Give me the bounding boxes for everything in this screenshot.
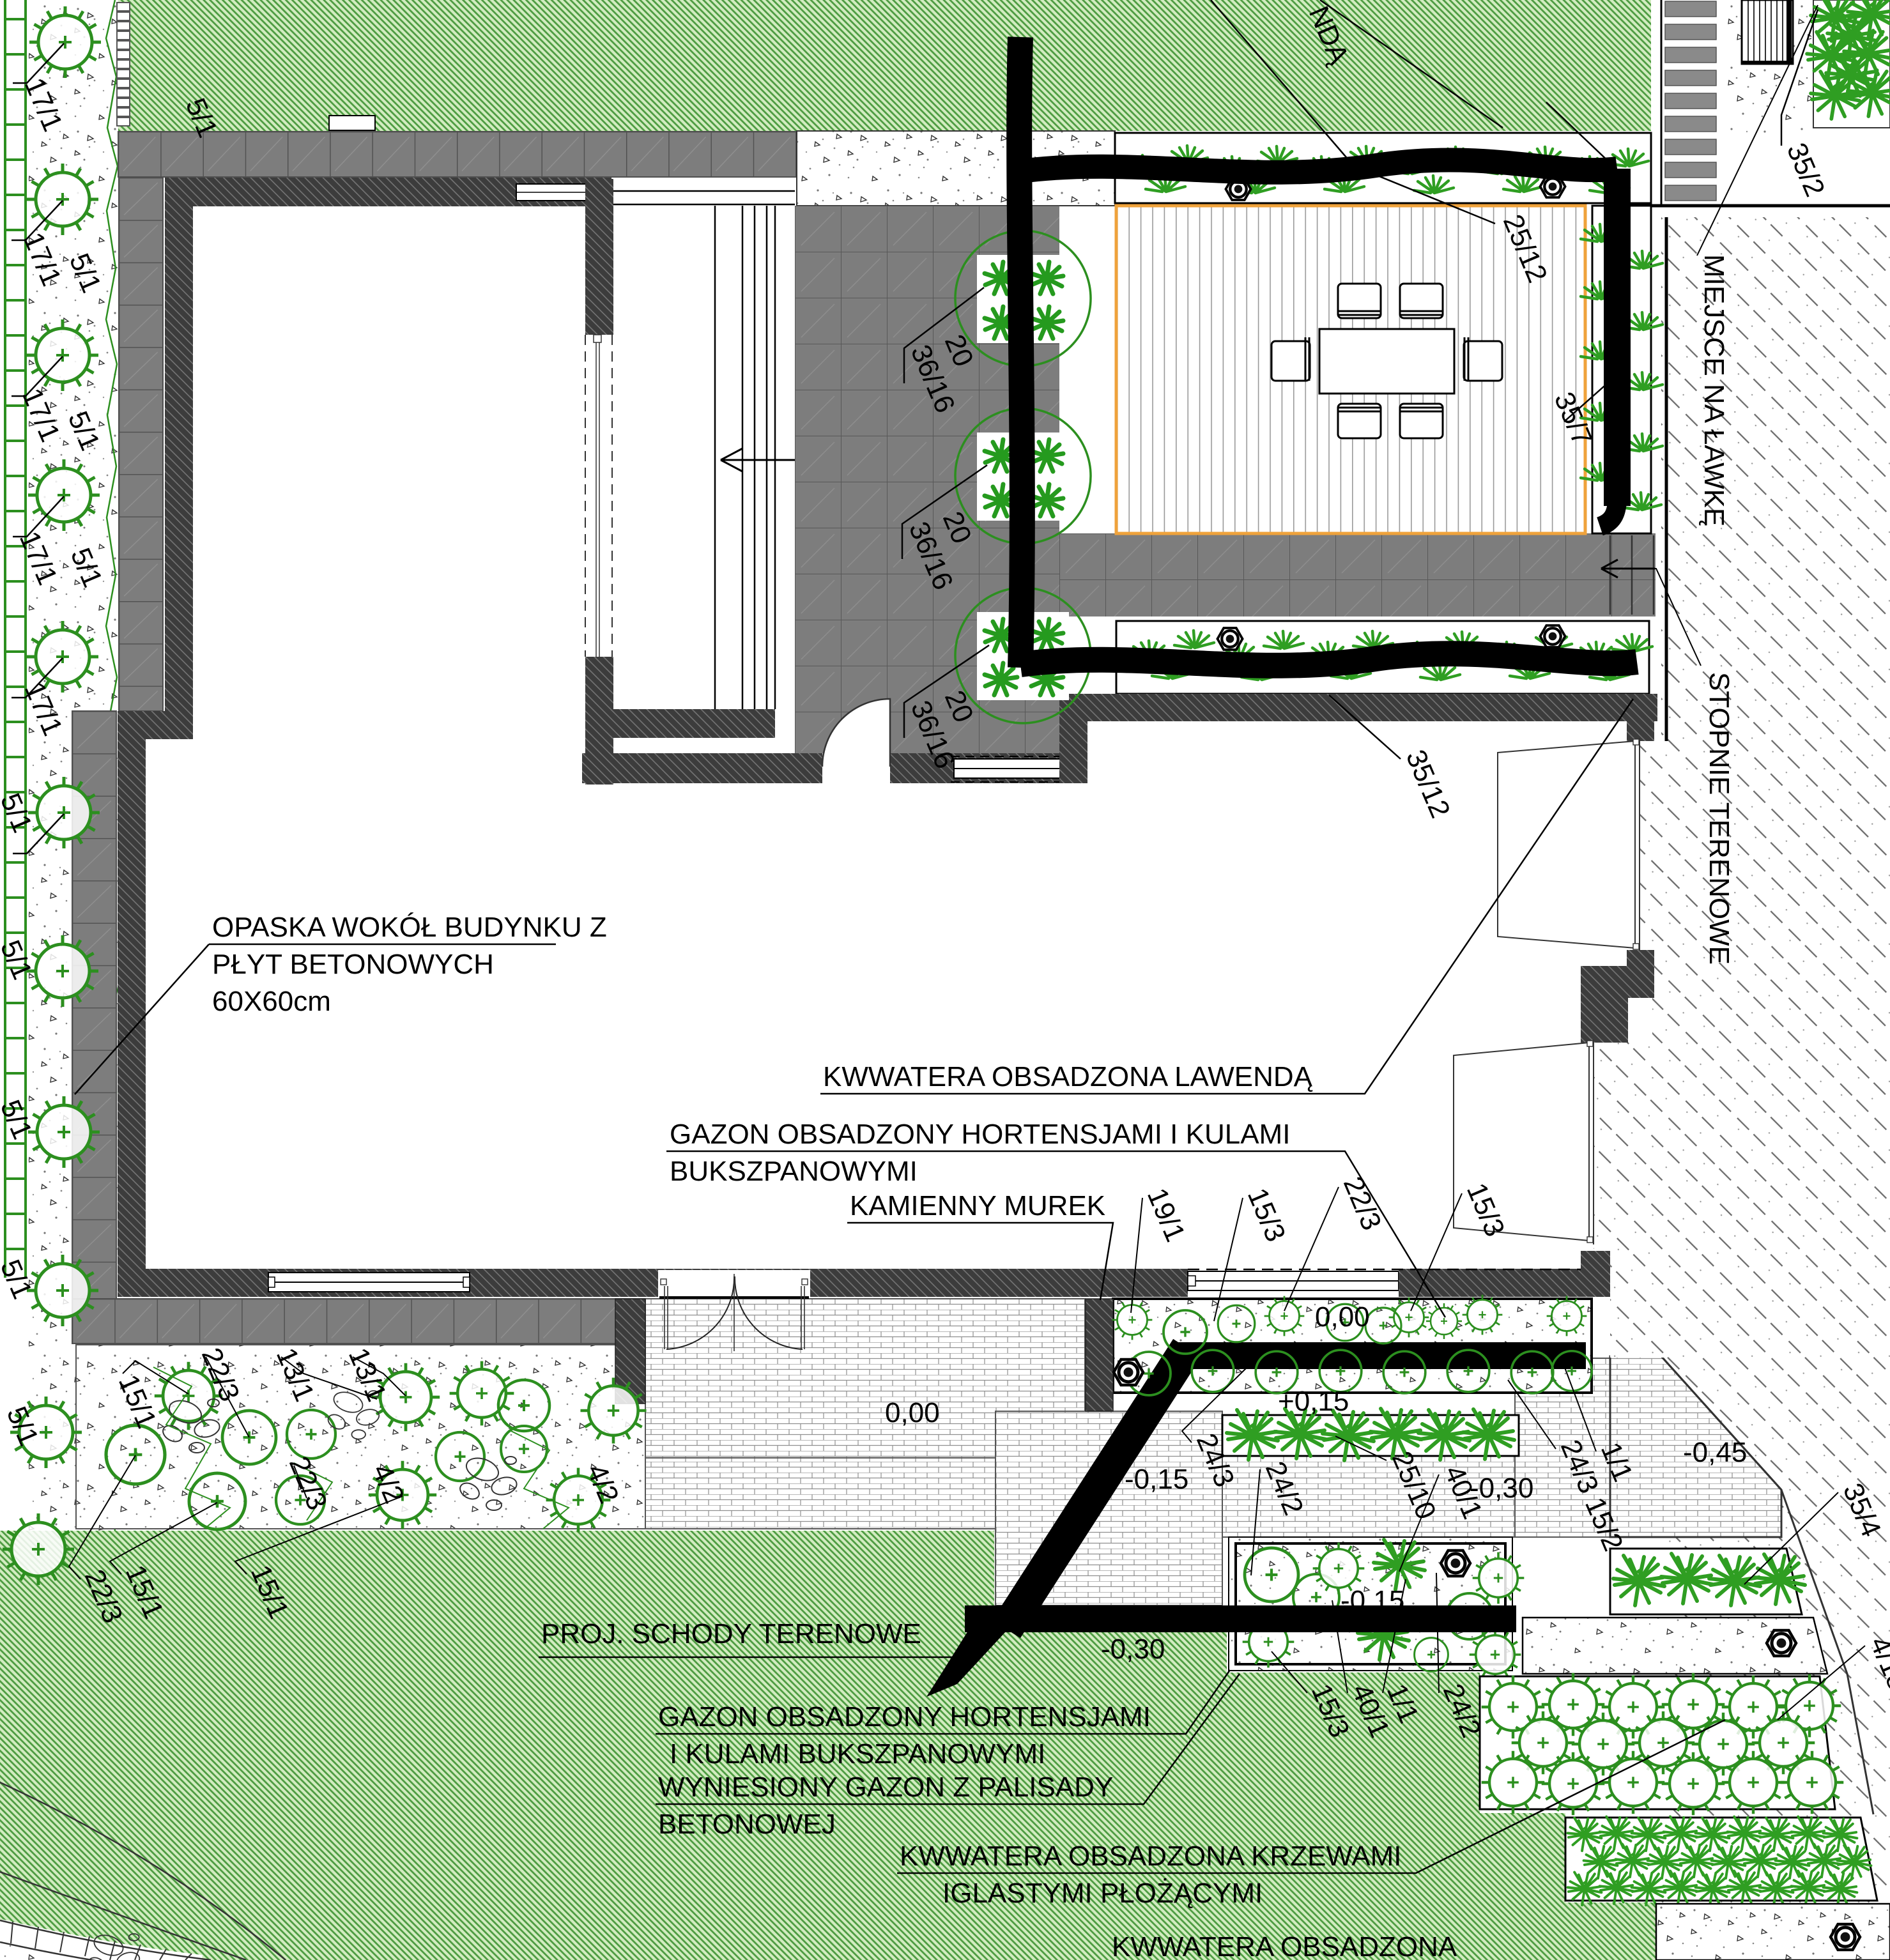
svg-text:BUKSZPANOWYMI: BUKSZPANOWYMI bbox=[670, 1156, 918, 1187]
svg-text:PROJ. SCHODY TERENOWE: PROJ. SCHODY TERENOWE bbox=[541, 1618, 921, 1650]
svg-text:BETONOWEJ: BETONOWEJ bbox=[658, 1809, 836, 1840]
svg-text:WYNIESIONY GAZON Z PALISADY: WYNIESIONY GAZON Z PALISADY bbox=[658, 1772, 1113, 1803]
svg-text:IGLASTYMI PŁOŻĄCYMI: IGLASTYMI PŁOŻĄCYMI bbox=[942, 1878, 1263, 1909]
svg-text:KWWATERA OBSADZONA: KWWATERA OBSADZONA bbox=[1112, 1931, 1457, 1960]
svg-text:KWWATERA OBSADZONA KRZEWAMI: KWWATERA OBSADZONA KRZEWAMI bbox=[900, 1841, 1402, 1872]
svg-text:-0,15: -0,15 bbox=[1125, 1464, 1188, 1495]
svg-text:-0,30: -0,30 bbox=[1101, 1634, 1165, 1665]
svg-text:-0,45: -0,45 bbox=[1683, 1437, 1747, 1468]
svg-text:-0,15: -0,15 bbox=[1341, 1585, 1404, 1616]
svg-text:I KULAMI BUKSZPANOWYMI: I KULAMI BUKSZPANOWYMI bbox=[670, 1738, 1045, 1770]
svg-text:KAMIENNY MUREK: KAMIENNY MUREK bbox=[850, 1190, 1105, 1221]
svg-text:0,00: 0,00 bbox=[1315, 1301, 1370, 1333]
svg-text:0,00: 0,00 bbox=[885, 1397, 940, 1428]
svg-text:-0,30: -0,30 bbox=[1470, 1473, 1533, 1504]
svg-text:GAZON OBSADZONY HORTENSJAMI I: GAZON OBSADZONY HORTENSJAMI I KULAMI bbox=[670, 1119, 1290, 1150]
svg-text:+0,15: +0,15 bbox=[1278, 1386, 1349, 1417]
svg-text:GAZON OBSADZONY HORTENSJAMI: GAZON OBSADZONY HORTENSJAMI bbox=[658, 1701, 1151, 1733]
svg-text:60X60cm: 60X60cm bbox=[212, 986, 331, 1017]
svg-text:PŁYT BETONOWYCH: PŁYT BETONOWYCH bbox=[212, 949, 494, 980]
svg-text:KWWATERA OBSADZONA LAWENDĄ: KWWATERA OBSADZONA LAWENDĄ bbox=[823, 1061, 1313, 1092]
svg-text:STOPNIE TERENOWE: STOPNIE TERENOWE bbox=[1703, 672, 1735, 965]
svg-text:OPASKA WOKÓŁ BUDYNKU Z: OPASKA WOKÓŁ BUDYNKU Z bbox=[212, 912, 607, 943]
svg-text:MIEJSCE NA ŁAWKĘ: MIEJSCE NA ŁAWKĘ bbox=[1698, 254, 1730, 526]
